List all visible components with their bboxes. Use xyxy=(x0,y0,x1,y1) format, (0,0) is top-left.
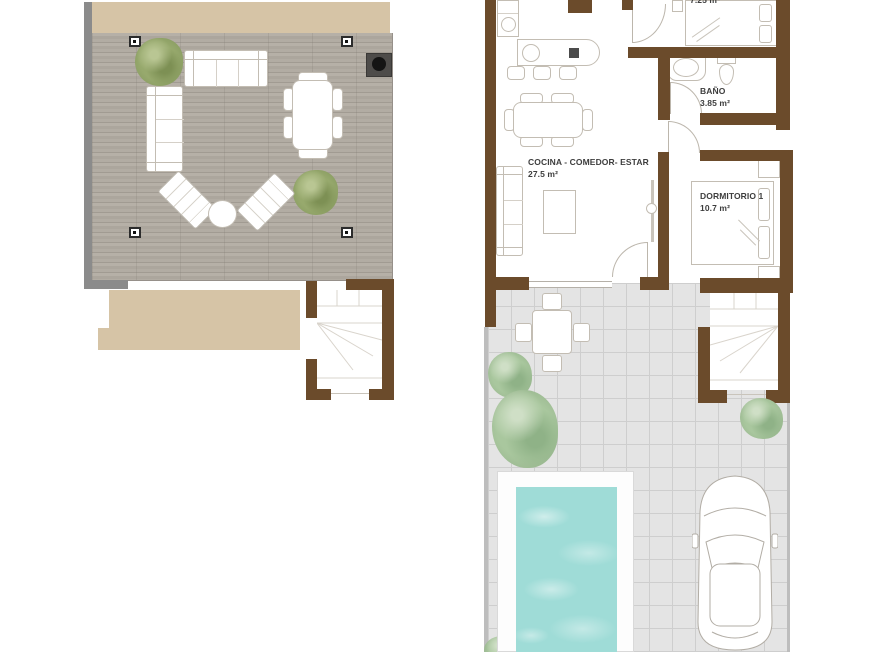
kitchen-appliance-drum xyxy=(501,17,516,32)
tv-bracket xyxy=(646,203,657,214)
stairwell-threshold xyxy=(727,394,766,395)
bar-stool xyxy=(533,66,551,80)
wall-left xyxy=(485,0,496,327)
patio-chair xyxy=(573,323,590,342)
room-area: 7.25 m² xyxy=(690,0,720,6)
dining-table xyxy=(513,102,583,138)
stairwell-wall xyxy=(778,290,790,403)
bed-fold-line xyxy=(696,25,720,42)
wall-right-upper xyxy=(776,0,790,130)
wall-bathroom-bottom xyxy=(700,113,790,125)
kitchen-sink xyxy=(522,44,540,62)
bathroom-door-swing xyxy=(670,82,702,114)
bedroom2-area-label: 7.25 m² xyxy=(690,0,720,6)
entrance-door-swing xyxy=(612,242,648,277)
kitchen-living-label: COCINA - COMEDOR- ESTAR 27.5 m² xyxy=(528,156,649,180)
living-sliding-door xyxy=(529,281,612,288)
room-name: BAÑO xyxy=(700,85,730,97)
kitchen-cooktop xyxy=(569,48,579,58)
wall-bathroom-left xyxy=(658,47,670,120)
pillow xyxy=(759,25,772,43)
swimming-pool xyxy=(516,487,617,652)
stairs xyxy=(710,293,778,390)
patio-chair xyxy=(515,323,532,342)
bathroom-label: BAÑO 3.85 m² xyxy=(700,85,730,109)
toilet-bowl xyxy=(719,64,734,85)
ground-floor-plan: COCINA - COMEDOR- ESTAR 27.5 m² BAÑO 3.8… xyxy=(0,0,870,652)
bathroom-vanity xyxy=(667,54,706,81)
bar-stool xyxy=(559,66,577,80)
wall-top-stub xyxy=(622,0,633,10)
room-area: 3.85 m² xyxy=(700,97,730,109)
wall-top-stub xyxy=(568,0,592,13)
patio-boundary-right xyxy=(787,400,790,652)
bathroom-sink xyxy=(673,58,699,77)
pillow xyxy=(759,4,772,22)
stairwell-wall xyxy=(698,390,727,403)
bedroom2-door-swing xyxy=(632,4,666,43)
wall-entry-foot xyxy=(640,277,669,290)
pillow xyxy=(758,226,770,259)
kitchen-island xyxy=(517,39,600,66)
bedroom2-bed xyxy=(685,0,777,46)
living-rug xyxy=(543,190,576,234)
bar-stool xyxy=(507,66,525,80)
wall-bedroom1-right xyxy=(780,150,793,293)
patio-table xyxy=(532,310,572,354)
bedroom1-label: DORMITORIO 1 10.7 m² xyxy=(700,190,763,214)
wall-bathroom-top xyxy=(628,47,778,58)
wall-living-bottom xyxy=(496,277,529,290)
bedroom1-door-swing xyxy=(668,121,700,153)
room-area: 27.5 m² xyxy=(528,168,649,180)
room-name: DORMITORIO 1 xyxy=(700,190,763,202)
patio-stairwell xyxy=(698,290,790,403)
patio-chair xyxy=(542,355,562,372)
car xyxy=(692,472,778,652)
patio-chair xyxy=(542,293,562,310)
bed-fold-line xyxy=(740,229,756,245)
patio-tree xyxy=(492,390,558,468)
dining-chair xyxy=(582,109,593,131)
floor-plan-canvas: COCINA - COMEDOR- ESTAR 27.5 m² BAÑO 3.8… xyxy=(0,0,870,652)
bedroom2-nightstand xyxy=(672,0,683,12)
patio-tree xyxy=(740,398,783,439)
room-name: COCINA - COMEDOR- ESTAR xyxy=(528,156,649,168)
room-area: 10.7 m² xyxy=(700,202,763,214)
kitchen-tall-unit xyxy=(497,0,519,37)
living-sofa xyxy=(496,166,523,256)
wall-bedroom1-left xyxy=(658,152,669,283)
